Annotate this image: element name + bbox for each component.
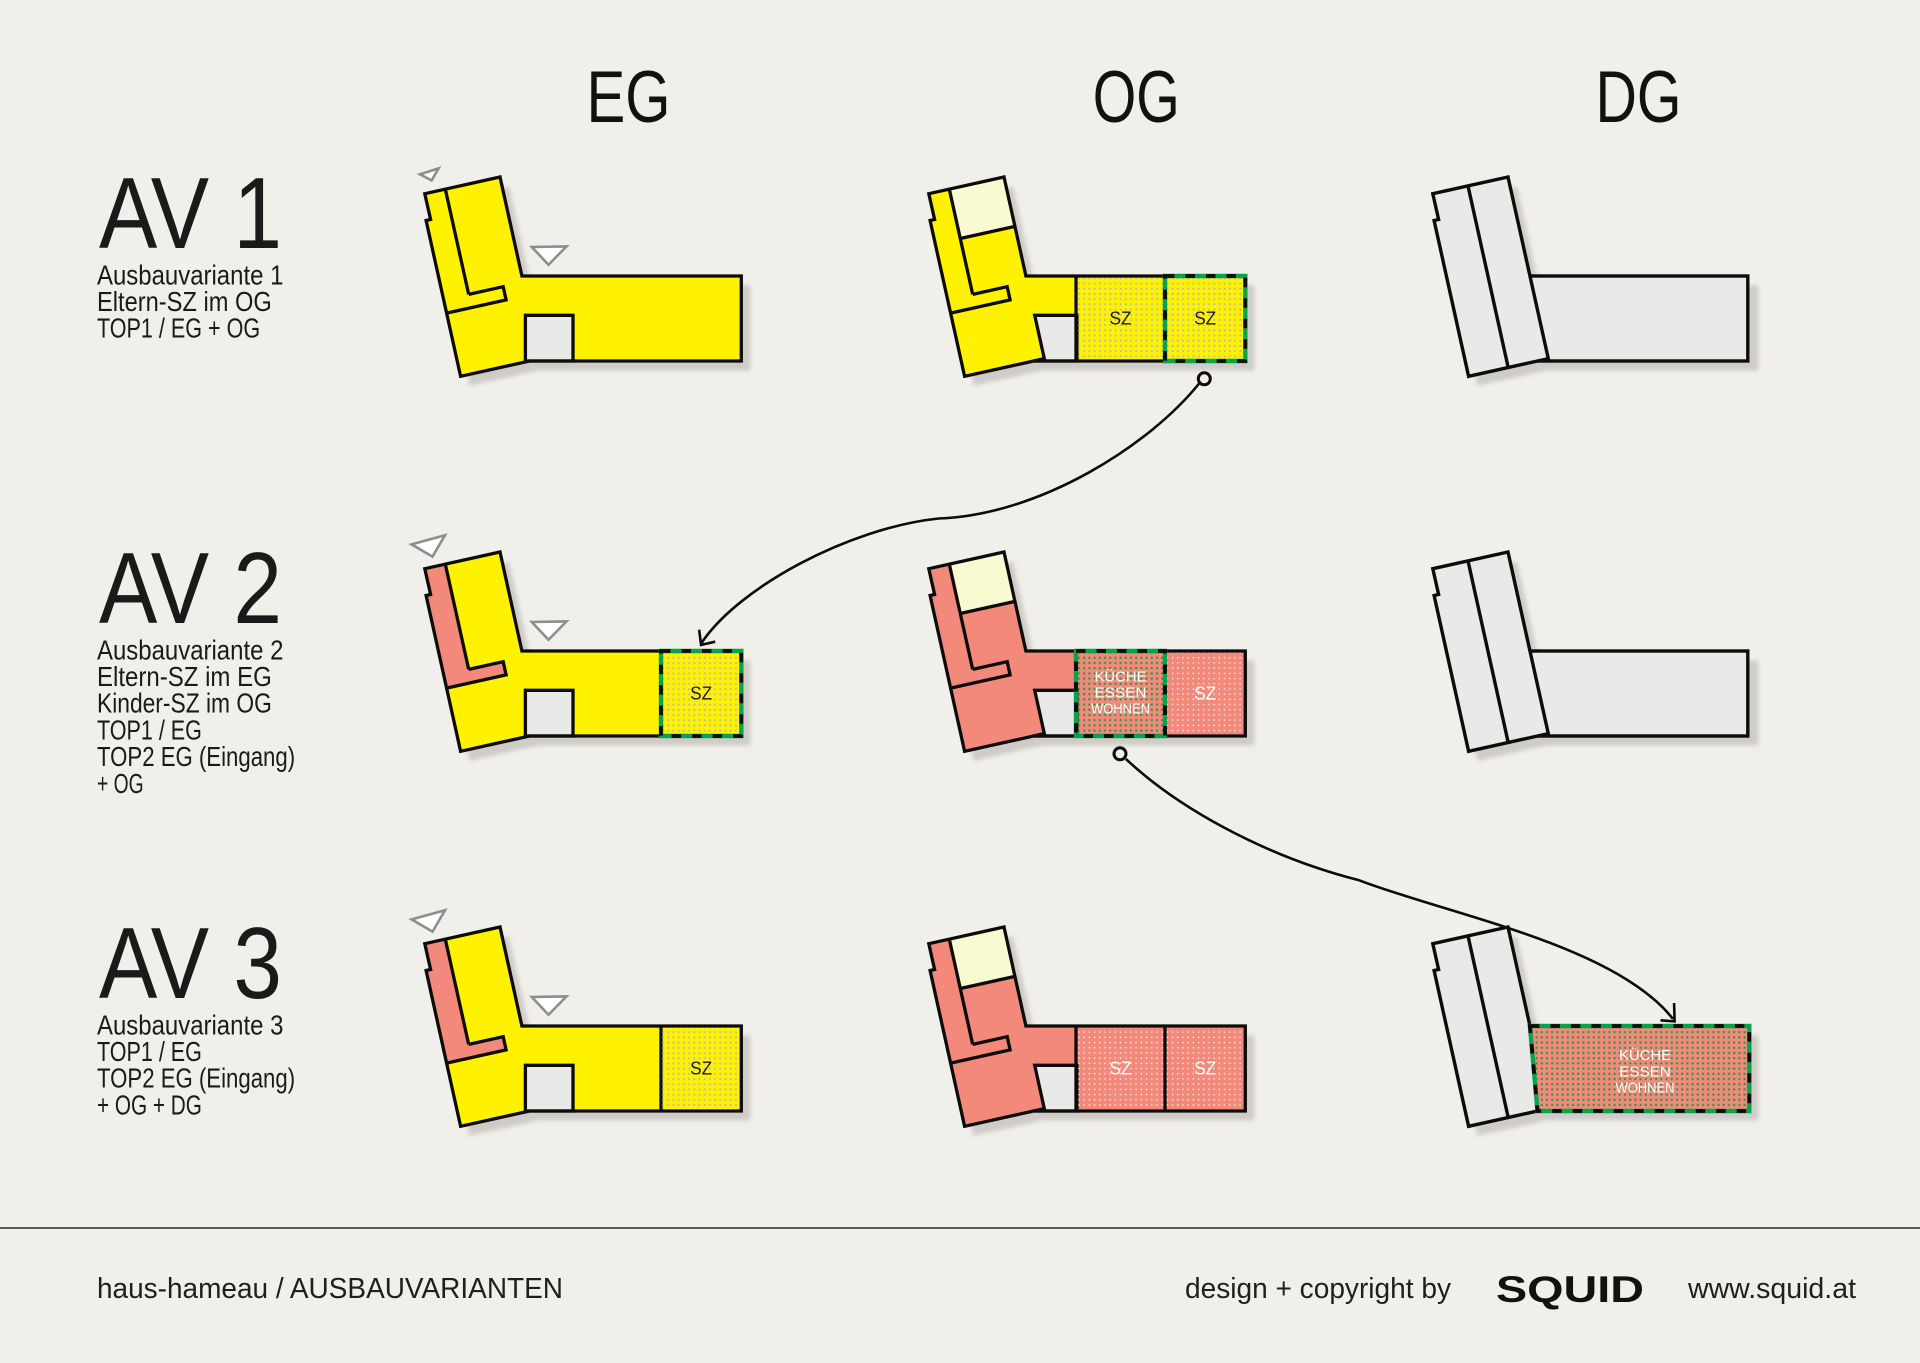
svg-text:TOP1 / EG + OG: TOP1 / EG + OG bbox=[97, 313, 260, 344]
svg-text:www.squid.at: www.squid.at bbox=[1687, 1273, 1856, 1305]
svg-text:SZ: SZ bbox=[1194, 1057, 1216, 1078]
svg-text:SZ: SZ bbox=[1110, 307, 1132, 328]
svg-text:AV 3: AV 3 bbox=[99, 908, 282, 1020]
svg-text:design + copyright by: design + copyright by bbox=[1185, 1273, 1452, 1305]
svg-text:+ OG: + OG bbox=[97, 768, 144, 799]
svg-text:KÜCHE: KÜCHE bbox=[1095, 667, 1147, 685]
svg-text:SQUID: SQUID bbox=[1496, 1269, 1644, 1310]
svg-text:SZ: SZ bbox=[1194, 682, 1216, 703]
svg-text:OG: OG bbox=[1093, 57, 1180, 138]
svg-text:ESSEN: ESSEN bbox=[1095, 685, 1147, 701]
svg-text:WOHNEN: WOHNEN bbox=[1616, 1081, 1675, 1097]
svg-text:DG: DG bbox=[1596, 57, 1682, 138]
svg-text:KÜCHE: KÜCHE bbox=[1619, 1046, 1671, 1064]
svg-text:SZ: SZ bbox=[690, 1057, 712, 1078]
svg-text:haus-hameau / AUSBAUVARIANTEN: haus-hameau / AUSBAUVARIANTEN bbox=[97, 1273, 563, 1305]
svg-text:WOHNEN: WOHNEN bbox=[1091, 702, 1150, 718]
svg-text:AV 2: AV 2 bbox=[99, 533, 282, 645]
svg-text:ESSEN: ESSEN bbox=[1619, 1064, 1671, 1080]
svg-text:SZ: SZ bbox=[1194, 307, 1216, 328]
svg-text:SZ: SZ bbox=[1110, 1057, 1132, 1078]
svg-text:SZ: SZ bbox=[690, 682, 712, 703]
svg-text:+ OG + DG: + OG + DG bbox=[97, 1089, 202, 1120]
svg-text:EG: EG bbox=[587, 57, 671, 138]
svg-text:AV 1: AV 1 bbox=[99, 158, 282, 270]
